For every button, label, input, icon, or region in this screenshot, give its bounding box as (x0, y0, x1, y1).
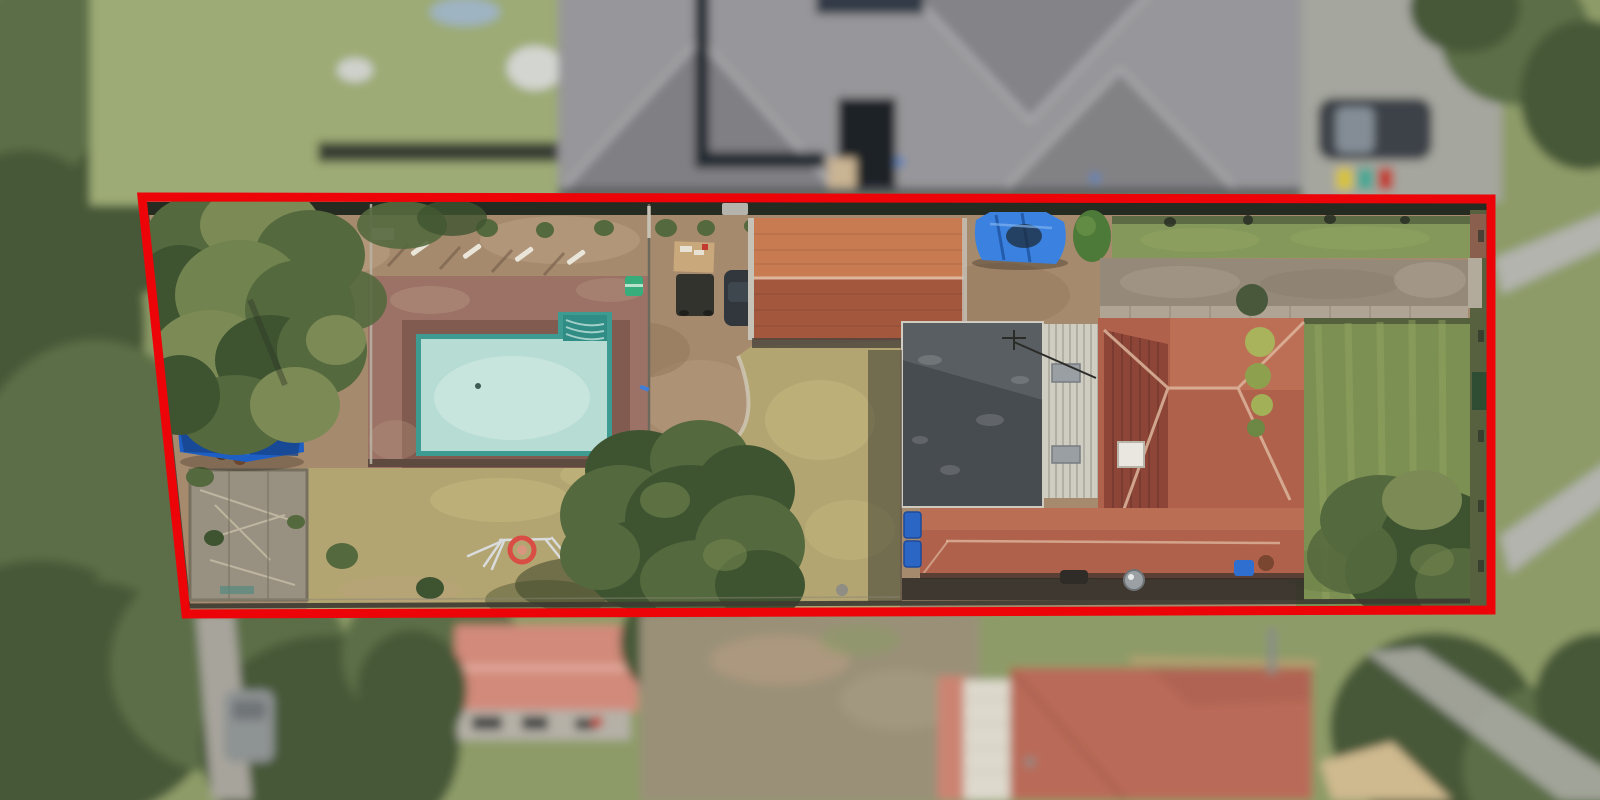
main-house-dark-roof (902, 322, 1043, 507)
round-shrub (1073, 210, 1111, 262)
trailer-with-junk (673, 241, 714, 316)
garden-pen (186, 467, 307, 600)
side-gate (1468, 258, 1482, 308)
kerbside-bins (1336, 168, 1393, 190)
veranda-shadow (902, 578, 1304, 600)
lawn-bush-2 (416, 577, 444, 599)
driveway (1100, 258, 1468, 318)
main-house-ribbed-roof (1043, 324, 1107, 498)
street-car (1318, 98, 1432, 160)
car-under-blue-cover (972, 212, 1068, 270)
neighbour-shed (455, 625, 638, 740)
ground-bottom-middle (640, 612, 980, 800)
fence-box (722, 203, 748, 215)
driveway-edge-bricks (1100, 306, 1468, 318)
round-shrub-highlight (1076, 216, 1096, 236)
side-passage-shadow (868, 350, 902, 602)
power-pole (1268, 628, 1276, 674)
satellite-dish (1124, 570, 1144, 590)
skylight-1 (1052, 364, 1080, 382)
terracotta-pot (1258, 555, 1274, 571)
blue-tub (1234, 560, 1254, 576)
main-house (902, 318, 1304, 600)
neighbour-roof-top (558, 0, 1308, 197)
bbq (1060, 570, 1088, 584)
shed-tree-left (357, 630, 467, 750)
front-lawn-strip (1112, 214, 1470, 258)
parked-car-bottom (224, 690, 274, 762)
bird-bath (836, 584, 848, 596)
rear-fence (142, 202, 1494, 215)
aerial-photo (0, 0, 1600, 800)
aerial-photo-stage (0, 0, 1600, 800)
skylight-2 (1052, 446, 1080, 463)
tile-skylight (1118, 442, 1144, 467)
esky (625, 276, 643, 296)
solar-panels (816, 0, 924, 14)
lawn-bush-1 (326, 543, 358, 569)
property-interior (130, 185, 1505, 624)
